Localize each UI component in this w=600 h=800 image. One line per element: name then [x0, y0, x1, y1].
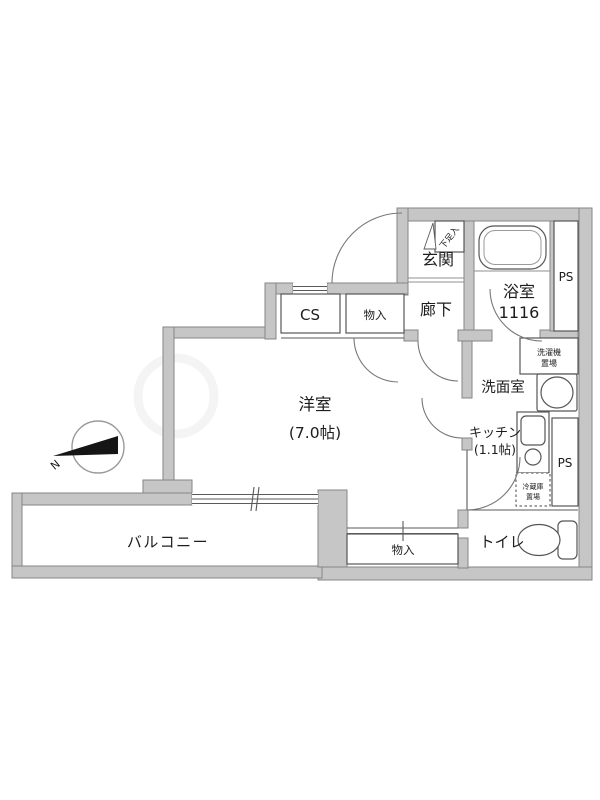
- balcony-sliding-door: [192, 487, 318, 511]
- label-fridge-1: 冷蔵庫: [523, 482, 544, 491]
- wall: [462, 341, 472, 398]
- label-cs-closet: CS: [300, 306, 320, 324]
- compass: N: [48, 421, 124, 473]
- window-gap: [293, 283, 327, 294]
- wall: [143, 480, 192, 493]
- label-storage-lower: 物入: [392, 543, 415, 557]
- label-toilet: トイレ: [479, 533, 524, 551]
- wall: [458, 330, 492, 341]
- wall: [397, 208, 408, 295]
- storage-upper-door-arc: [354, 338, 398, 382]
- label-washroom: 洗面室: [481, 379, 525, 396]
- label-hallway: 廊下: [420, 300, 452, 319]
- wall: [12, 566, 322, 578]
- kitchen-sink: [521, 416, 545, 445]
- compass-needle: [53, 436, 118, 456]
- wall: [397, 208, 592, 221]
- entrance-door-arc: [332, 213, 402, 283]
- wall: [579, 208, 592, 580]
- kitchen-burner: [525, 449, 541, 465]
- window-cs: [293, 283, 327, 294]
- wall: [318, 567, 592, 580]
- wall: [327, 283, 408, 294]
- wall: [12, 493, 22, 578]
- label-ps-lower: PS: [558, 456, 573, 470]
- wall: [163, 327, 174, 480]
- wall: [12, 493, 192, 505]
- wall: [464, 221, 474, 340]
- label-western-room-area: (7.0帖): [289, 424, 341, 442]
- toilet-tank: [558, 521, 577, 559]
- basin-bowl: [541, 377, 573, 408]
- label-storage-upper: 物入: [364, 308, 387, 322]
- wall: [458, 538, 468, 568]
- floor-plan-page: N 玄関 下足入 廊下 浴室 1116 PS PS 洗面室 洗濯機 置場 キッチ…: [0, 0, 600, 800]
- bathtub-inner: [484, 231, 541, 265]
- label-kitchen-area: (1.1帖): [474, 442, 516, 457]
- label-bathroom-size: 1116: [499, 303, 540, 322]
- label-fridge-2: 置場: [526, 492, 540, 501]
- washroom-door-arc: [422, 398, 462, 438]
- shoe-cabinet-wedge: [424, 223, 436, 249]
- wall: [458, 510, 468, 528]
- label-washer-2: 置場: [541, 358, 557, 368]
- wall: [163, 327, 265, 338]
- label-washer-1: 洗濯機: [537, 347, 561, 357]
- watermark: [138, 358, 214, 434]
- label-balcony: バルコニー: [127, 533, 209, 551]
- compass-north-label: N: [48, 457, 63, 472]
- hallway-door-arc: [418, 341, 458, 381]
- label-western-room: 洋室: [299, 395, 332, 414]
- label-genkan: 玄関: [422, 250, 454, 269]
- label-kitchen: キッチン: [469, 426, 521, 441]
- wall: [404, 330, 418, 341]
- wall: [265, 283, 276, 339]
- label-bathroom: 浴室: [503, 282, 535, 301]
- floor-plan: N 玄関 下足入 廊下 浴室 1116 PS PS 洗面室 洗濯機 置場 キッチ…: [0, 0, 600, 800]
- label-ps-upper: PS: [559, 270, 574, 284]
- wall: [318, 490, 347, 567]
- kitchen-door-arc: [467, 457, 520, 510]
